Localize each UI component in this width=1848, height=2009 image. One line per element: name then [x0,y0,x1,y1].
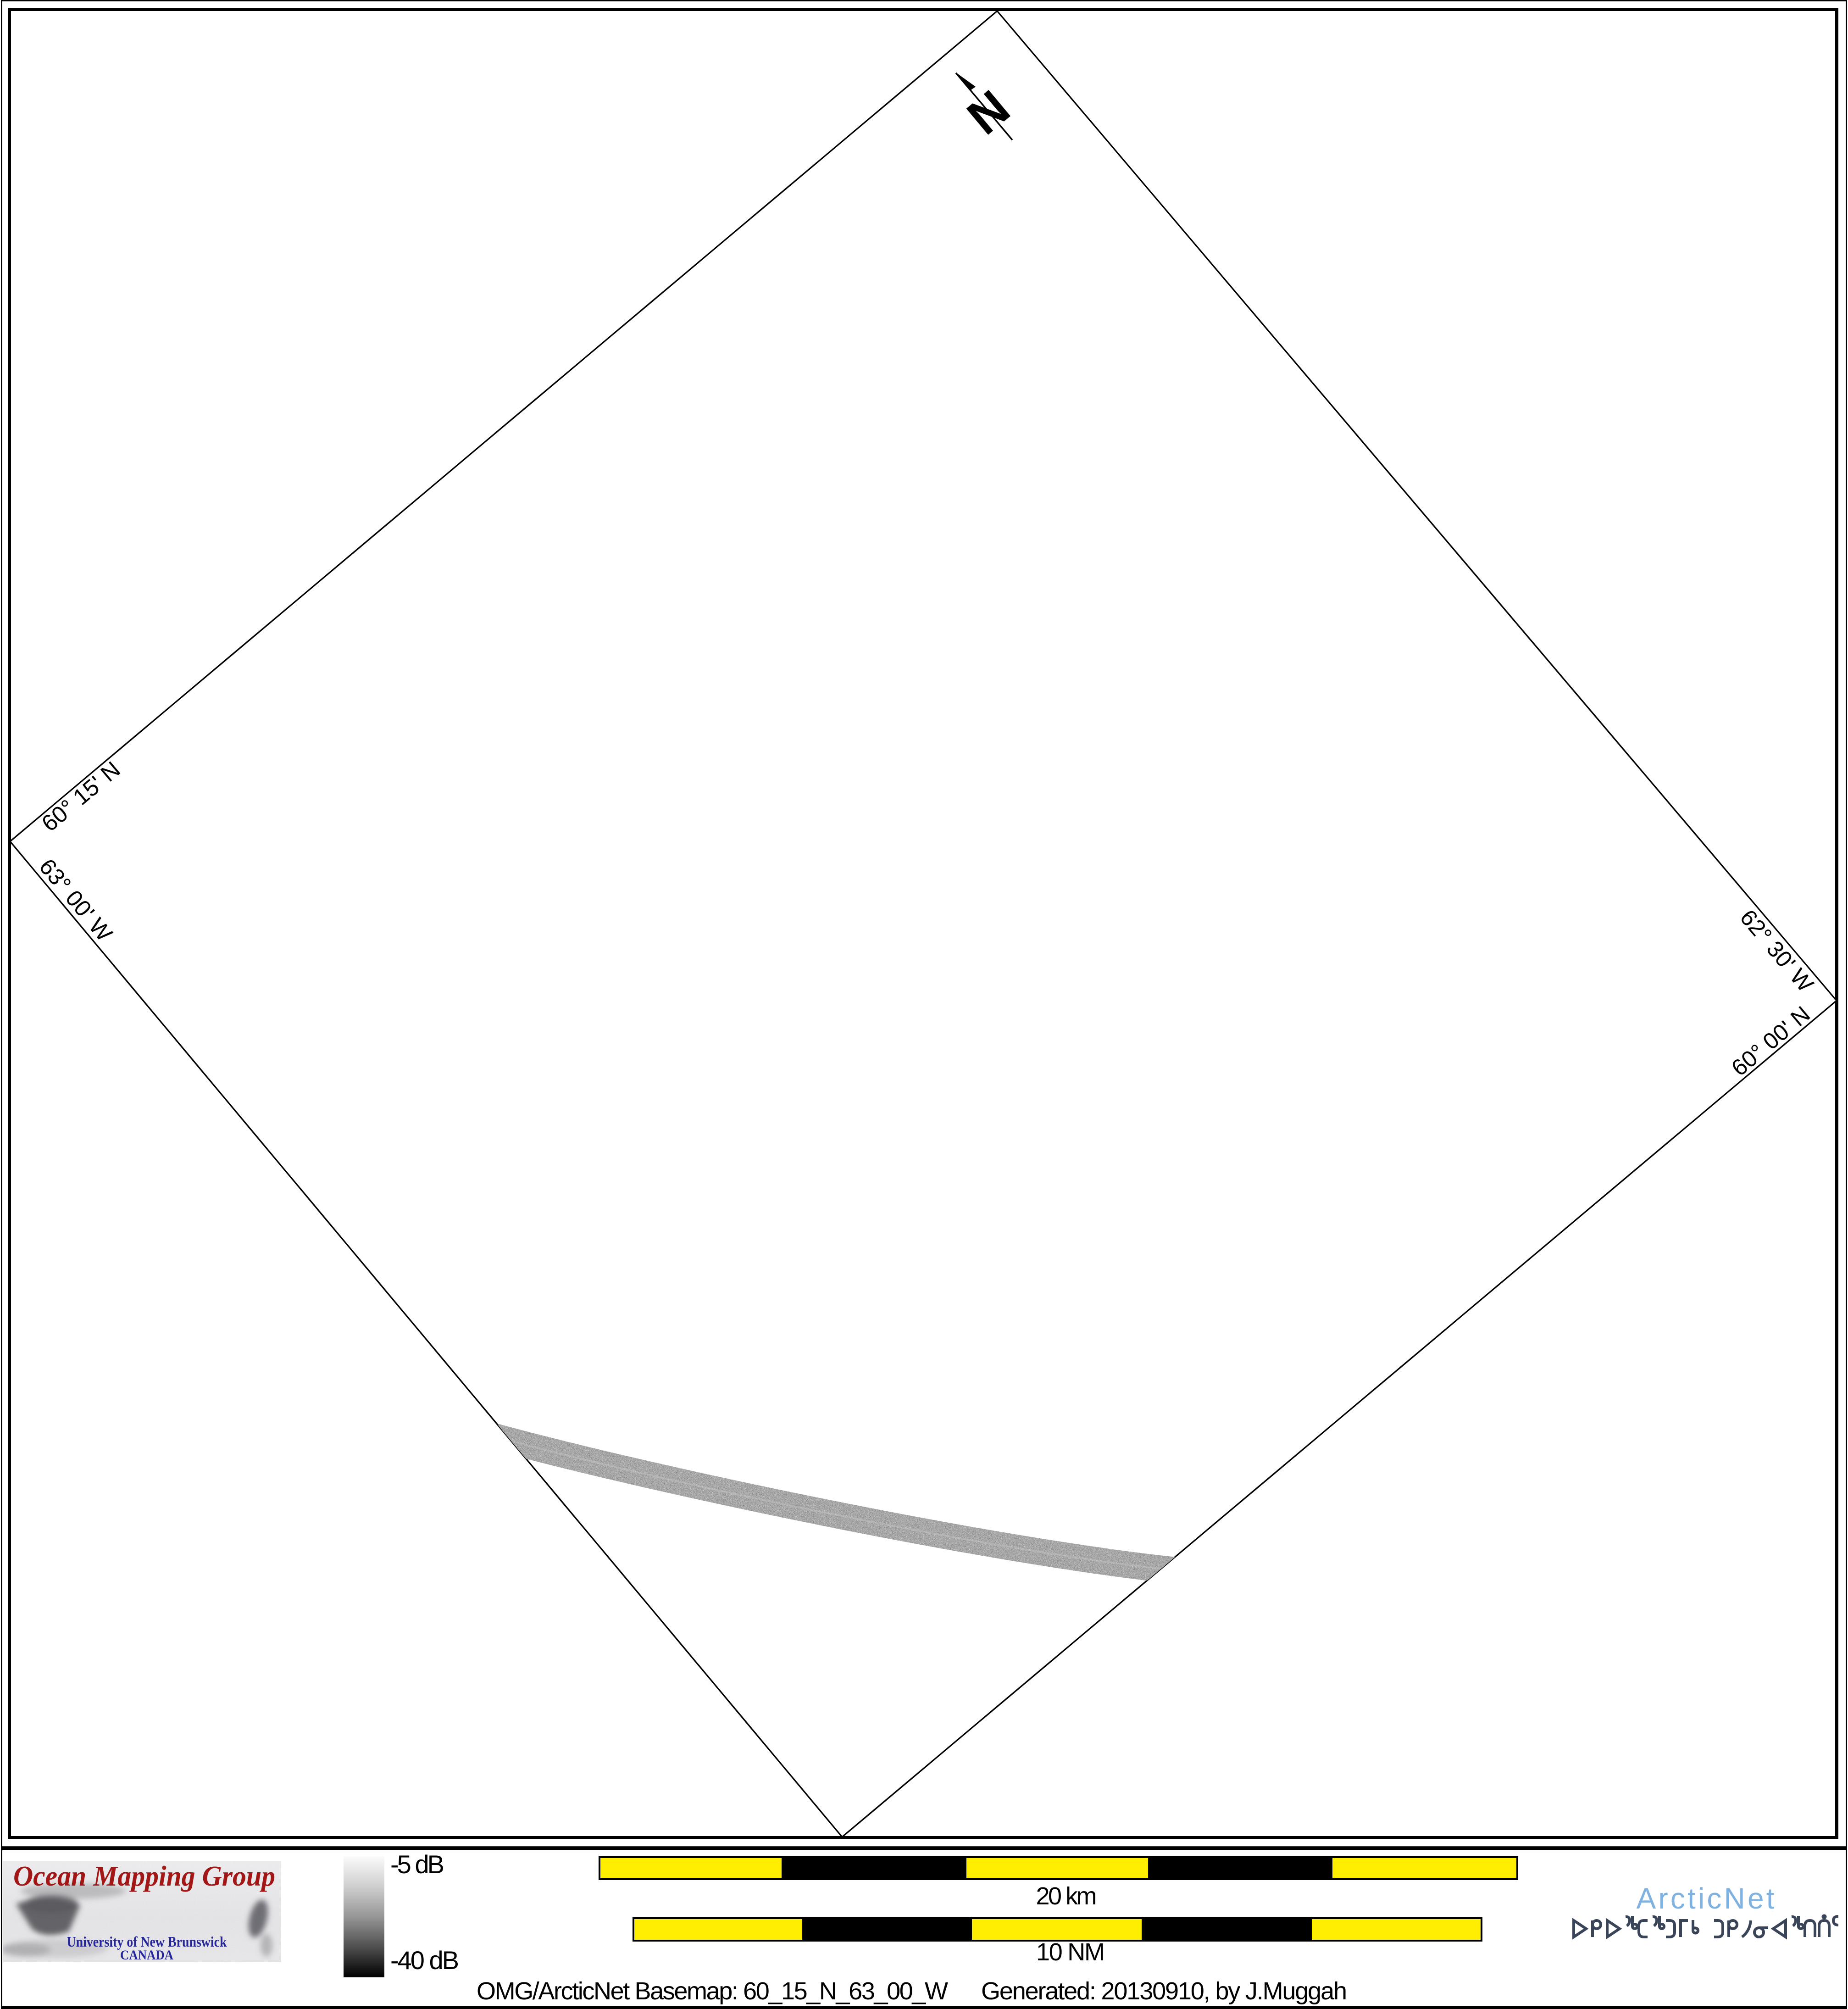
svg-text:Generated: 20130910, by J.Mugg: Generated: 20130910, by J.Muggah [981,1977,1347,2005]
svg-text:OMG/ArcticNet Basemap: 60_15_N: OMG/ArcticNet Basemap: 60_15_N_63_00_W [477,1977,948,2005]
svg-text:-5 dB: -5 dB [390,1850,444,1879]
svg-text:-40 dB: -40 dB [390,1946,459,1975]
svg-text:10 NM: 10 NM [1036,1938,1105,1966]
svg-text:Ocean Mapping Group: Ocean Mapping Group [13,1861,275,1892]
svg-text:20 km: 20 km [1036,1882,1097,1910]
svg-text:CANADA: CANADA [120,1948,173,1963]
